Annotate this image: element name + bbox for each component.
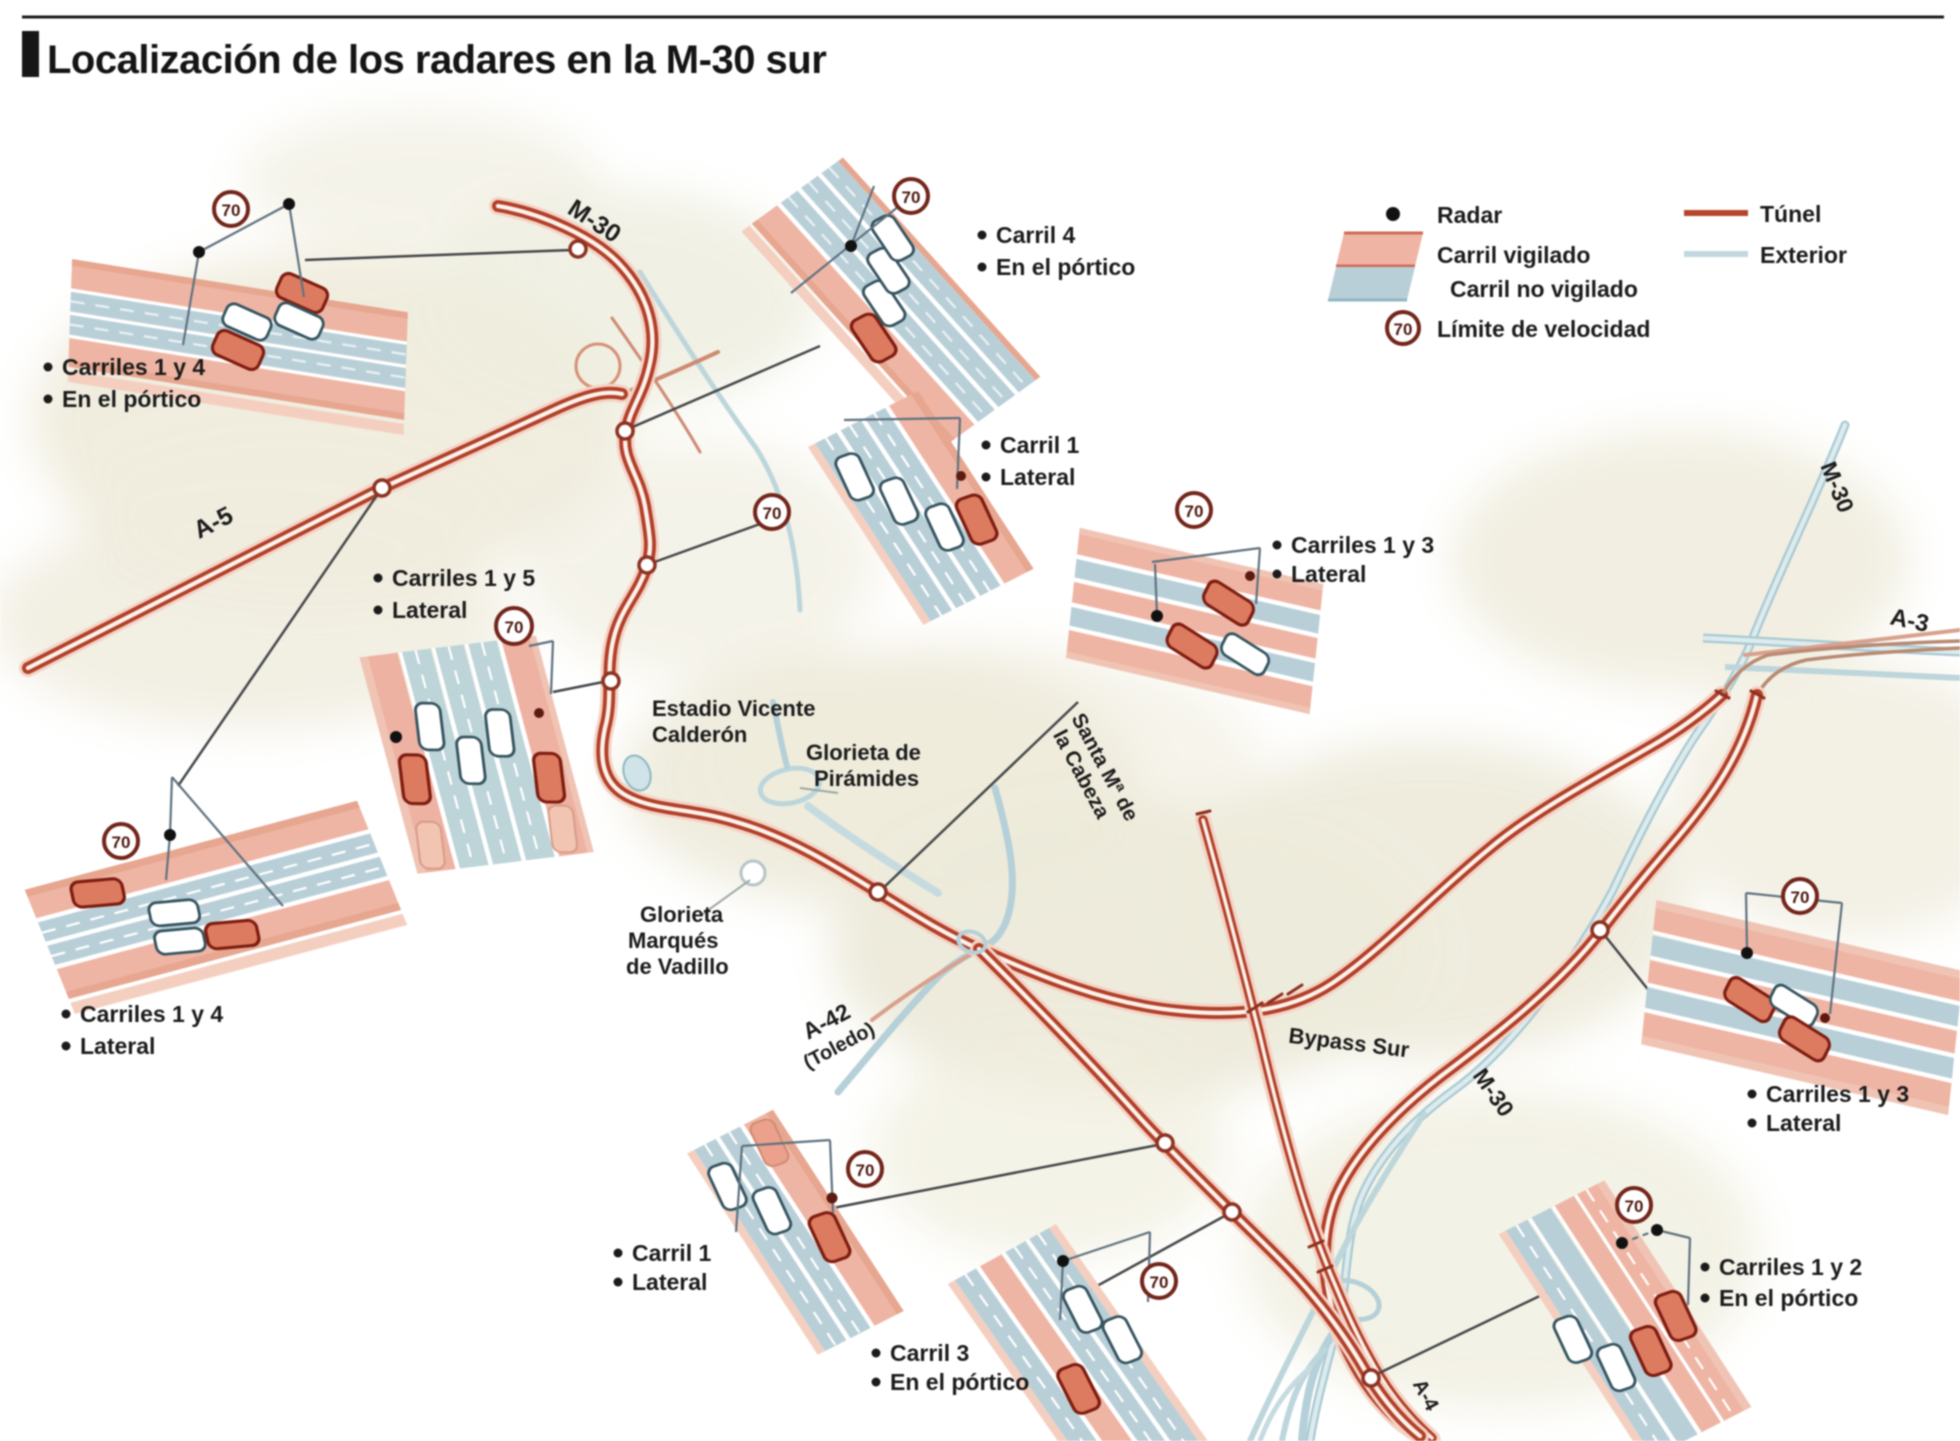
svg-text:70: 70 <box>1185 502 1204 521</box>
svg-text:En el pórtico: En el pórtico <box>62 386 201 412</box>
svg-text:En el pórtico: En el pórtico <box>890 1369 1029 1395</box>
svg-text:Carriles 1 y 2: Carriles 1 y 2 <box>1719 1254 1862 1280</box>
svg-text:Localización de los radares en: Localización de los radares en la M-30 s… <box>47 38 826 82</box>
svg-text:Lateral: Lateral <box>1000 464 1075 490</box>
svg-text:Pirámides: Pirámides <box>814 766 919 791</box>
svg-text:Lateral: Lateral <box>1291 561 1366 587</box>
svg-text:Carriles 1 y 3: Carriles 1 y 3 <box>1291 532 1434 558</box>
svg-text:En el pórtico: En el pórtico <box>996 254 1135 280</box>
svg-text:70: 70 <box>1150 1273 1169 1292</box>
svg-text:Glorieta de: Glorieta de <box>806 740 921 765</box>
svg-text:Túnel: Túnel <box>1760 201 1821 227</box>
svg-text:Carril vigilado: Carril vigilado <box>1437 242 1590 268</box>
svg-text:70: 70 <box>112 833 131 852</box>
svg-text:70: 70 <box>1394 320 1413 339</box>
svg-text:70: 70 <box>763 504 782 523</box>
svg-text:Radar: Radar <box>1437 202 1502 228</box>
svg-text:Lateral: Lateral <box>392 597 467 623</box>
svg-text:Lateral: Lateral <box>80 1033 155 1059</box>
svg-text:de Vadillo: de Vadillo <box>626 954 729 979</box>
svg-text:Carriles 1 y 4: Carriles 1 y 4 <box>80 1001 223 1027</box>
svg-text:70: 70 <box>505 618 524 637</box>
svg-text:Carril 4: Carril 4 <box>996 222 1075 248</box>
svg-text:Carriles 1 y 4: Carriles 1 y 4 <box>62 354 205 380</box>
svg-text:A-3: A-3 <box>1888 603 1931 637</box>
svg-text:En el pórtico: En el pórtico <box>1719 1285 1858 1311</box>
svg-text:Lateral: Lateral <box>1766 1110 1841 1136</box>
svg-text:Carril no vigilado: Carril no vigilado <box>1450 276 1638 302</box>
svg-text:Lateral: Lateral <box>632 1269 707 1295</box>
svg-text:70: 70 <box>856 1161 875 1180</box>
svg-text:70: 70 <box>1791 888 1810 907</box>
svg-text:Estadio Vicente: Estadio Vicente <box>652 696 815 721</box>
svg-text:Glorieta: Glorieta <box>640 902 724 927</box>
svg-text:70: 70 <box>222 201 241 220</box>
svg-text:Límite de velocidad: Límite de velocidad <box>1437 316 1650 342</box>
svg-text:Marqués: Marqués <box>628 928 718 953</box>
svg-text:Carriles 1 y 5: Carriles 1 y 5 <box>392 565 535 591</box>
svg-text:Carril 1: Carril 1 <box>1000 432 1079 458</box>
svg-text:Exterior: Exterior <box>1760 242 1847 268</box>
svg-text:Calderón: Calderón <box>652 722 747 747</box>
svg-text:Carriles 1 y 3: Carriles 1 y 3 <box>1766 1081 1909 1107</box>
svg-text:70: 70 <box>1625 1197 1644 1216</box>
svg-text:Carril 1: Carril 1 <box>632 1240 711 1266</box>
svg-text:Carril 3: Carril 3 <box>890 1340 969 1366</box>
svg-text:70: 70 <box>902 188 921 207</box>
